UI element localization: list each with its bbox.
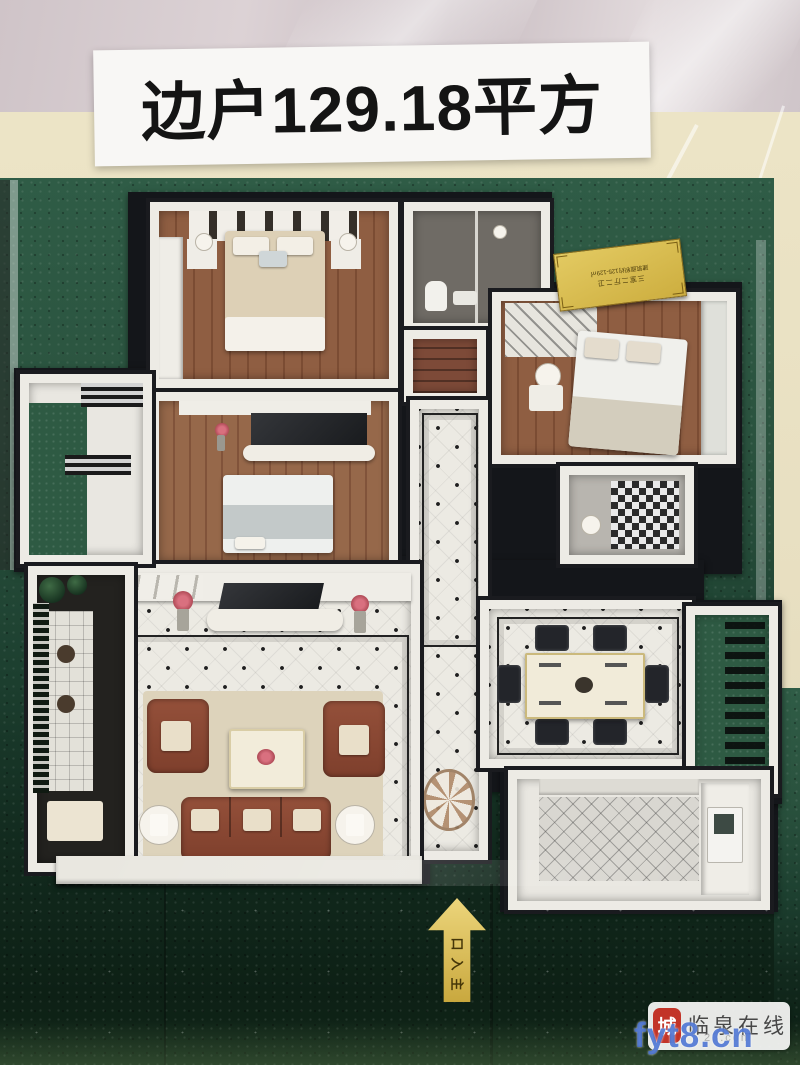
sofa-pillow: [191, 809, 219, 831]
bed3-blanket: [568, 396, 682, 455]
fridge-window: [714, 814, 734, 834]
shower-head: [493, 225, 507, 239]
louver-panel: [65, 455, 131, 475]
bed-footboard: [225, 317, 325, 351]
tv-panel: [251, 413, 367, 445]
corridor-rug-frame: [422, 413, 478, 647]
bathroom2-sink: [581, 515, 601, 535]
bed2-pillow: [235, 537, 265, 549]
balcony-left-bottom: [28, 566, 134, 872]
plaque-ornament: [556, 255, 568, 267]
vase-pot: [217, 435, 225, 451]
coffee-table-flowers: [257, 749, 275, 765]
table-setting: [605, 701, 627, 705]
sofa-pillow: [293, 809, 321, 831]
dining-room: [480, 600, 692, 768]
balcony-turf: [29, 403, 87, 555]
armchair-right: [323, 701, 385, 777]
table-centerpiece: [575, 677, 593, 693]
dining-chair: [593, 625, 627, 651]
bedroom-3: [492, 292, 736, 464]
entry-medallion: [423, 769, 475, 831]
balcony-slats: [725, 619, 765, 779]
lamp-right: [339, 233, 357, 251]
bed-3: [568, 330, 688, 455]
table-setting: [539, 701, 561, 705]
potted-plant: [39, 577, 65, 603]
tv-cabinet: [243, 445, 375, 461]
coffee-table: [229, 729, 305, 789]
showroom-photo: 三室二厅二卫 建筑面积约125-129㎡ 口入主 边户129.18平方 城 临泉…: [0, 0, 800, 1065]
sofa-seam: [280, 797, 282, 837]
bathroom2-checker-floor: [611, 481, 679, 549]
table-setting: [539, 663, 561, 667]
bedroom3-right-ledge: [701, 301, 727, 455]
plaque-ornament: [666, 242, 678, 254]
side-lamp-left: [150, 814, 168, 836]
wardrobe: [159, 237, 183, 379]
sink: [453, 291, 477, 305]
bathroom-2: [560, 466, 694, 564]
shower-partition: [475, 211, 478, 323]
dining-chair: [535, 625, 569, 651]
bed-cushion: [259, 251, 287, 267]
living-tv-console: [207, 609, 343, 631]
hall-closet: [404, 330, 486, 402]
balcony-right: [686, 606, 778, 794]
dining-chair: [497, 665, 521, 703]
flower-vase-left: [173, 591, 193, 611]
fridge: [707, 807, 743, 863]
area-banner-text: 边户129.18平方: [140, 54, 603, 153]
dining-chair: [535, 719, 569, 745]
nightstand-3: [529, 385, 563, 411]
armchair-pillow: [339, 725, 369, 755]
living-tv-panel: [218, 583, 324, 611]
bed3-pillow: [584, 337, 620, 360]
balcony-left-top: [20, 374, 152, 564]
bedroom-2: [150, 392, 398, 570]
case-left-edge: [0, 180, 10, 570]
balcony-chair: [57, 695, 75, 713]
dining-table: [525, 653, 645, 719]
watermark-url: fyt8.cn: [634, 1016, 754, 1056]
louver-panel: [81, 383, 143, 407]
balcony-bench: [47, 801, 103, 841]
toilet: [425, 281, 447, 311]
side-lamp-right: [346, 814, 364, 836]
area-banner: 边户129.18平方: [93, 42, 651, 167]
potted-plant: [67, 575, 87, 595]
plaque-ornament: [561, 296, 573, 308]
vase-pot-right: [354, 611, 366, 633]
corridor: [410, 400, 488, 860]
dining-chair: [645, 665, 669, 703]
table-setting: [605, 663, 627, 667]
balcony-chair: [57, 645, 75, 663]
bed-2: [223, 475, 333, 553]
armchair-left: [147, 699, 209, 773]
side-table-right: [335, 805, 375, 845]
side-table-left: [139, 805, 179, 845]
balcony-railing-left: [33, 603, 49, 793]
sofa-3seat: [181, 797, 331, 861]
bed: [225, 231, 325, 351]
plaque-text: 三室二厅二卫 建筑面积约125-129㎡: [590, 262, 650, 288]
dining-chair: [593, 719, 627, 745]
sofa-seam: [229, 797, 231, 837]
plaque-ornament: [671, 282, 683, 294]
kitchen-cabinets: [539, 779, 699, 795]
vase-pot-left: [177, 609, 189, 631]
lamp-left: [195, 233, 213, 251]
armchair-pillow: [161, 721, 191, 751]
master-bedroom: [150, 202, 398, 388]
bed3-pillow: [626, 341, 662, 364]
bed2-blanket: [223, 505, 333, 539]
sofa-pillow: [243, 809, 271, 831]
